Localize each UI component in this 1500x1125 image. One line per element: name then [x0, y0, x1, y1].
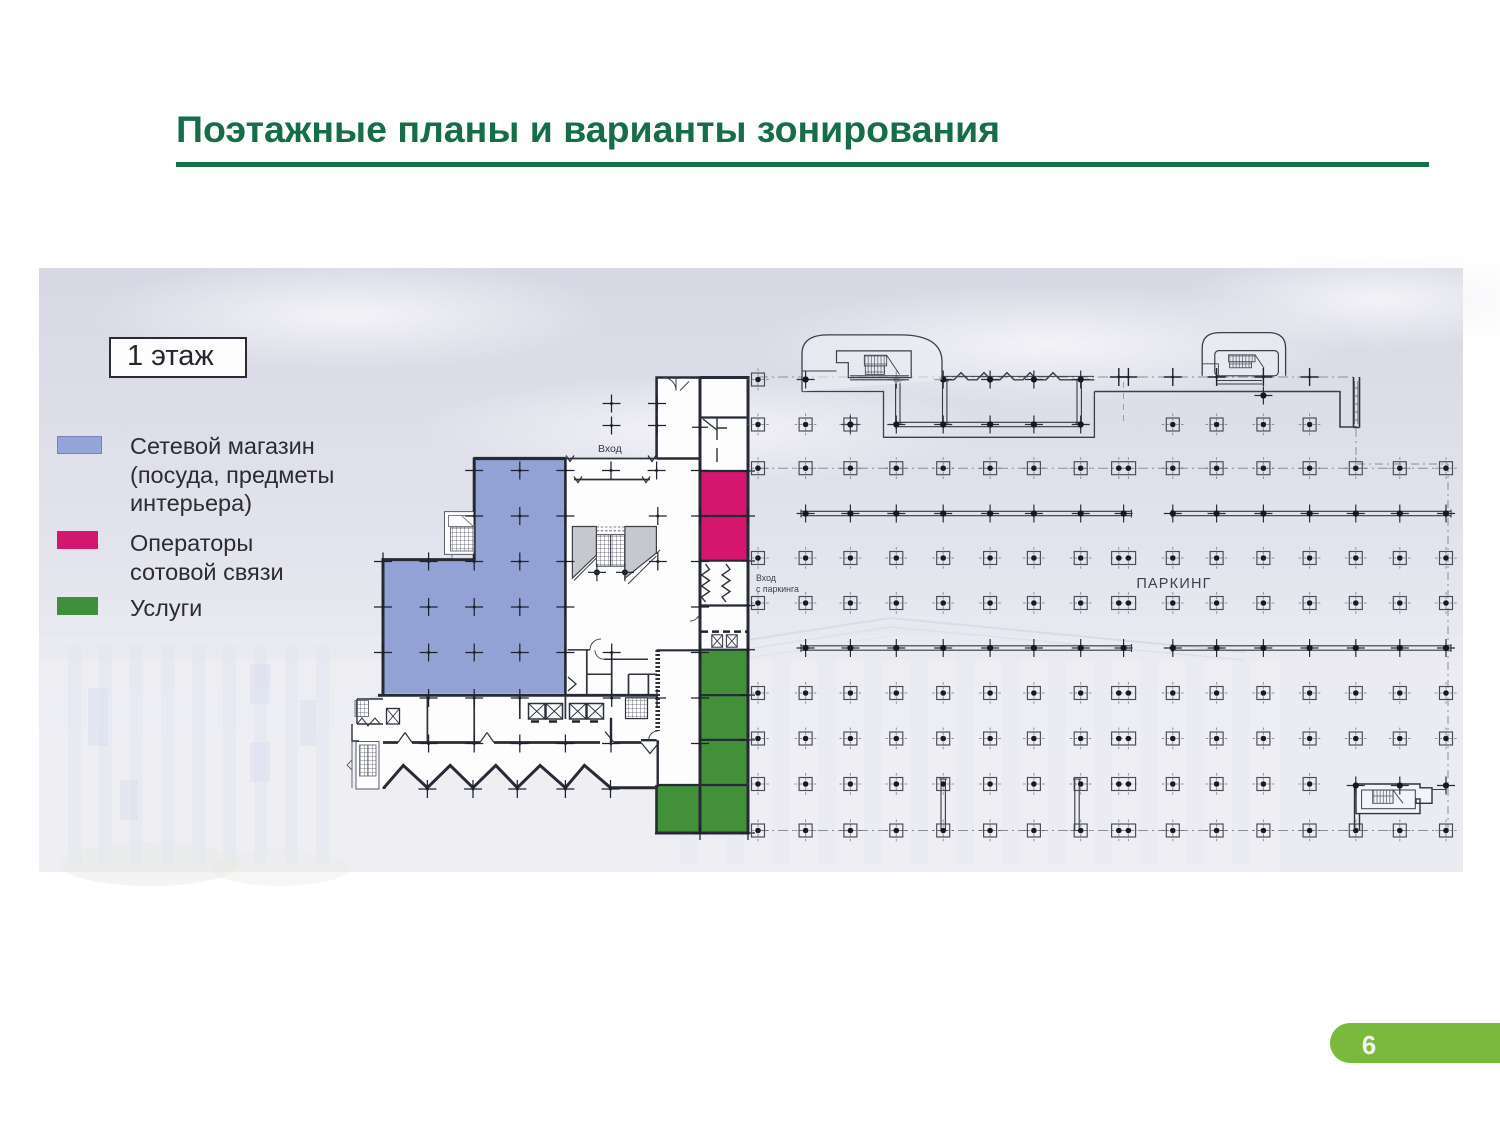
- svg-text:с паркинга: с паркинга: [756, 584, 799, 594]
- svg-text:Вход: Вход: [598, 443, 622, 455]
- svg-text:ПАРКИНГ: ПАРКИНГ: [1136, 576, 1211, 592]
- svg-text:Вход: Вход: [756, 573, 776, 583]
